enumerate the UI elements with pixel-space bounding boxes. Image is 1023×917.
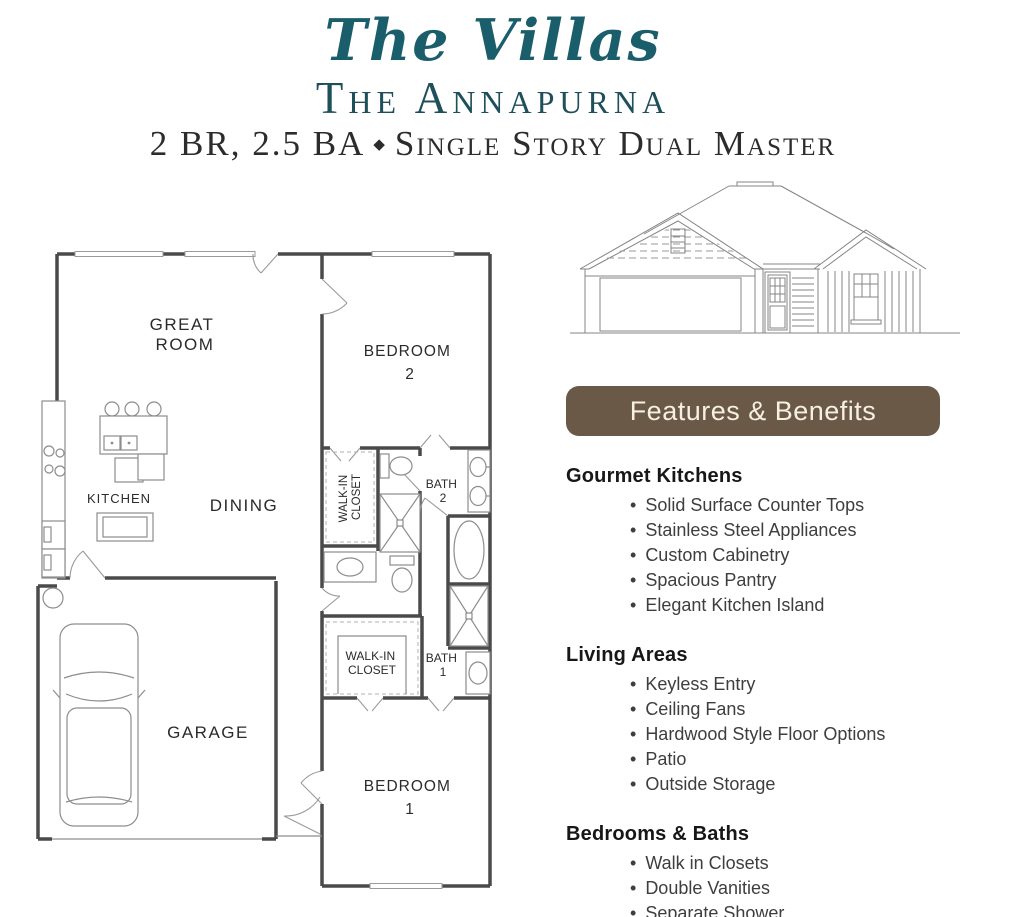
plan-subtitle: 2 BR, 2.5 BA◆Single Story Dual Master — [0, 124, 986, 164]
gable-vent — [671, 229, 685, 253]
powder-sink — [337, 558, 363, 576]
room-label-bedroom2: BEDROOM 2 — [364, 343, 456, 383]
room-label-bath2: BATH 2 — [426, 477, 460, 505]
section-title: Gourmet Kitchens — [566, 465, 1018, 488]
feature-item: Ceiling Fans — [630, 697, 1018, 722]
bathtub — [454, 521, 484, 579]
garage-door — [600, 278, 741, 331]
window — [370, 884, 442, 889]
stove-burner — [44, 446, 54, 456]
bath2-sink — [470, 458, 486, 477]
bedroom2-door-swing — [322, 279, 347, 314]
feature-section-bedrooms-baths: Bedrooms & Baths Walk in Closets Double … — [566, 823, 1018, 917]
bar-stool — [105, 402, 119, 416]
features-sections: Gourmet Kitchens Solid Surface Counter T… — [566, 465, 1018, 917]
room-label-kitchen: KITCHEN — [87, 491, 151, 506]
stove-burner — [45, 465, 53, 473]
feature-item: Custom Cabinetry — [630, 543, 1018, 568]
toilet-tank — [380, 454, 389, 478]
feature-item: Separate Shower — [630, 901, 1018, 917]
toilet-tank — [390, 556, 414, 565]
room-label-walkin-closet-2: WALK-IN CLOSET — [338, 472, 363, 523]
feature-item: Solid Surface Counter Tops — [630, 493, 1018, 518]
door-window-grid — [770, 278, 785, 302]
feature-item: Keyless Entry — [630, 672, 1018, 697]
door-window — [770, 278, 785, 302]
main-roof — [644, 186, 894, 333]
powder-door-swing — [322, 588, 340, 611]
brand-title: The Villas — [0, 10, 986, 72]
feature-item: Patio — [630, 747, 1018, 772]
feature-item: Hardwood Style Floor Options — [630, 722, 1018, 747]
features-banner: Features & Benefits — [566, 386, 940, 436]
appliance-detail — [44, 527, 51, 542]
appliance-detail — [44, 555, 51, 570]
header: The Villas The Annapurna 2 BR, 2.5 BA◆Si… — [0, 10, 986, 164]
ridge-vent — [737, 182, 773, 186]
car-outline — [53, 624, 145, 826]
toilet-bowl — [390, 457, 412, 475]
subtitle-specs: 2 BR, 2.5 BA — [150, 124, 366, 163]
window — [75, 252, 163, 257]
sink-drain — [111, 442, 114, 445]
porch-door-swing — [284, 797, 320, 834]
flyer-page: The Villas The Annapurna 2 BR, 2.5 BA◆Si… — [0, 0, 1023, 917]
entry-door-swing — [253, 254, 278, 273]
board-batten-siding — [818, 269, 920, 333]
section-title: Bedrooms & Baths — [566, 823, 1018, 846]
stove-burner — [56, 449, 64, 457]
diamond-separator-icon: ◆ — [365, 135, 395, 153]
section-title: Living Areas — [566, 644, 1018, 667]
room-label-dining: DINING — [210, 496, 279, 515]
bath1-sink — [469, 662, 487, 684]
toilet-bowl — [392, 568, 412, 592]
feature-item: Double Vanities — [630, 876, 1018, 901]
floor-plan: GREAT ROOM KITCHEN DINING GARAGE BEDROOM… — [20, 246, 520, 906]
features-panel: Features & Benefits Gourmet Kitchens Sol… — [566, 386, 1018, 917]
feature-list: Walk in Closets Double Vanities Separate… — [566, 851, 1018, 917]
room-label-bath1: BATH 1 — [426, 651, 460, 679]
room-label-bedroom1: BEDROOM 1 — [364, 778, 456, 818]
feature-section-living-areas: Living Areas Keyless Entry Ceiling Fans … — [566, 644, 1018, 797]
shower-drain — [466, 613, 472, 619]
feature-list: Solid Surface Counter Tops Stainless Ste… — [566, 493, 1018, 618]
room-label-garage: GARAGE — [167, 723, 249, 742]
feature-item: Outside Storage — [630, 772, 1018, 797]
bar-stool — [125, 402, 139, 416]
plan-name-title: The Annapurna — [0, 74, 986, 122]
room-label-walkin-closet-1: WALK-IN CLOSET — [346, 649, 399, 677]
brick-texture — [596, 230, 760, 258]
island-extension — [138, 454, 164, 480]
window-grid — [854, 274, 878, 297]
subtitle-descriptor: Single Story Dual Master — [395, 124, 836, 163]
closet2-shelving — [326, 452, 374, 542]
room-label-great-room: GREAT ROOM — [150, 315, 221, 354]
gable-vent-slats — [671, 236, 685, 248]
shower-drain — [397, 520, 403, 526]
feature-item: Walk in Closets — [630, 851, 1018, 876]
pantry-cabinet-inner — [103, 517, 147, 537]
feature-section-gourmet-kitchens: Gourmet Kitchens Solid Surface Counter T… — [566, 465, 1018, 618]
bar-stool — [147, 402, 161, 416]
door-panel — [770, 306, 785, 328]
window — [185, 252, 255, 257]
feature-item: Spacious Pantry — [630, 568, 1018, 593]
water-heater — [43, 588, 63, 608]
feature-item: Stainless Steel Appliances — [630, 518, 1018, 543]
lap-siding — [792, 278, 814, 326]
house-elevation-drawing — [556, 172, 1018, 344]
feature-item: Elegant Kitchen Island — [630, 593, 1018, 618]
feature-list: Keyless Entry Ceiling Fans Hardwood Styl… — [566, 672, 1018, 797]
window — [372, 252, 454, 257]
stove-burner — [55, 466, 65, 476]
kitchen-hall-door-swing — [70, 551, 105, 578]
sink-drain — [128, 442, 131, 445]
bath2-sink — [470, 487, 486, 506]
garage-wall — [585, 269, 755, 333]
window-sill — [851, 320, 881, 324]
